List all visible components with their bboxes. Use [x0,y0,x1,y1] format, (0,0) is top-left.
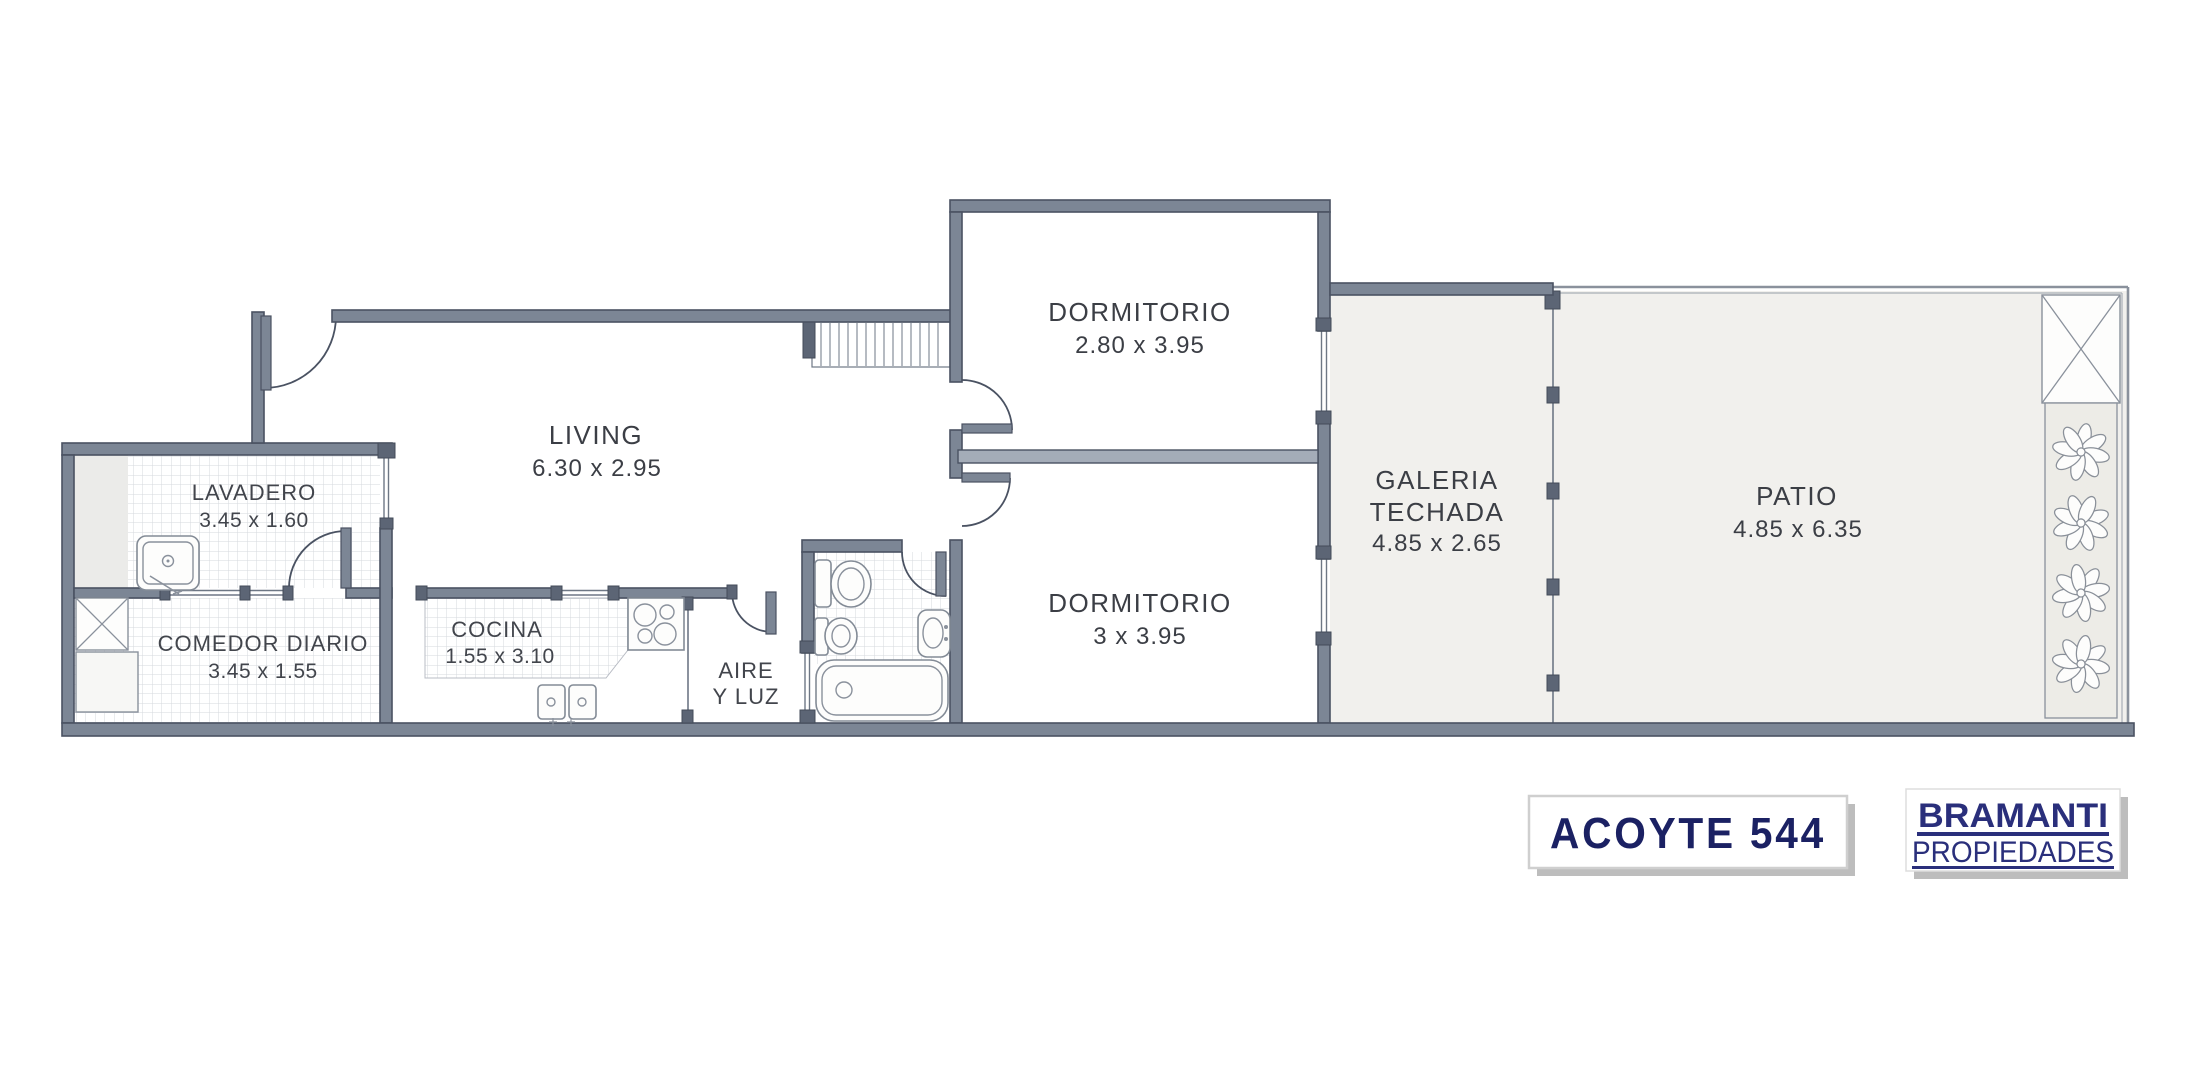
address-plate-text: ACOYTE 544 [1550,809,1826,858]
label-lavadero-name: LAVADERO [192,480,317,505]
aire-door-leaf [766,592,776,634]
entry-door-leaf [261,316,271,390]
wall-segment [62,455,74,723]
column [1547,387,1559,403]
label-dormitorio2-dims: 3 x 3.95 [1093,623,1186,650]
label-galeria-line1: GALERIA [1375,465,1498,495]
wall-segment [380,528,392,723]
lavadero-door-leaf [341,528,351,588]
column [1547,483,1559,499]
label-dormitorio1-name: DORMITORIO [1048,297,1232,327]
label-comedor-dims: 3.45 x 1.55 [208,660,317,683]
floor-plan: LAVADERO 3.45 x 1.60 COMEDOR DIARIO 3.45… [0,0,2205,1080]
label-lavadero-dims: 3.45 x 1.60 [199,509,308,532]
wall-segment [62,443,392,455]
wall-segment [802,540,902,552]
wall-segment [1318,633,1330,723]
toilet [815,560,871,607]
label-patio-dims: 4.85 x 6.35 [1733,516,1863,543]
brand-name: BRAMANTI [1918,797,2108,835]
column [1547,579,1559,595]
wall-segment [950,200,1330,212]
dormitorio-divider-wall [958,450,1318,463]
wall-segment [802,552,814,653]
cooktop [628,598,684,650]
label-living-dims: 6.30 x 2.95 [532,455,662,482]
wall-segment [425,588,560,598]
label-aire-line2: Y LUZ [713,684,780,709]
laundry-sink [137,536,199,594]
wall-segment [1318,212,1330,331]
label-cocina-dims: 1.55 x 3.10 [445,645,554,668]
brand-tagline: PROPIEDADES [1912,836,2114,869]
wall-segment [950,212,962,382]
stairs [803,316,950,367]
bottom-wall [62,723,2134,736]
bathtub [816,660,948,721]
wall-segment [332,310,955,322]
brand-logo: BRAMANTI PROPIEDADES [1906,789,2128,879]
dormitorio1-door-leaf [962,424,1012,433]
brand-rule-bottom [1912,866,2114,869]
dormitorio2-door-leaf [962,473,1010,482]
label-dormitorio2-name: DORMITORIO [1048,588,1232,618]
bathroom-sink [918,610,950,657]
label-galeria-dims: 4.85 x 2.65 [1372,530,1502,557]
label-patio-name: PATIO [1756,481,1838,511]
comedor-fixtures [76,598,138,712]
column [1547,675,1559,691]
wall-segment [1318,412,1330,559]
bidet [815,618,857,655]
label-cocina-name: COCINA [451,617,543,642]
label-galeria-line2: TECHADA [1370,497,1505,527]
cabinet [76,652,138,712]
address-plate: ACOYTE 544 [1529,796,1855,876]
label-living-name: LIVING [549,420,643,450]
wall-segment [1330,283,1553,295]
bathroom-door-leaf [936,552,946,596]
label-comedor-name: COMEDOR DIARIO [158,631,369,656]
wall-segment [950,540,962,723]
wall-segment [612,588,732,598]
label-aire-line1: AIRE [718,658,773,683]
label-dormitorio1-dims: 2.80 x 3.95 [1075,332,1205,359]
lavadero-counter-strip [74,455,128,588]
